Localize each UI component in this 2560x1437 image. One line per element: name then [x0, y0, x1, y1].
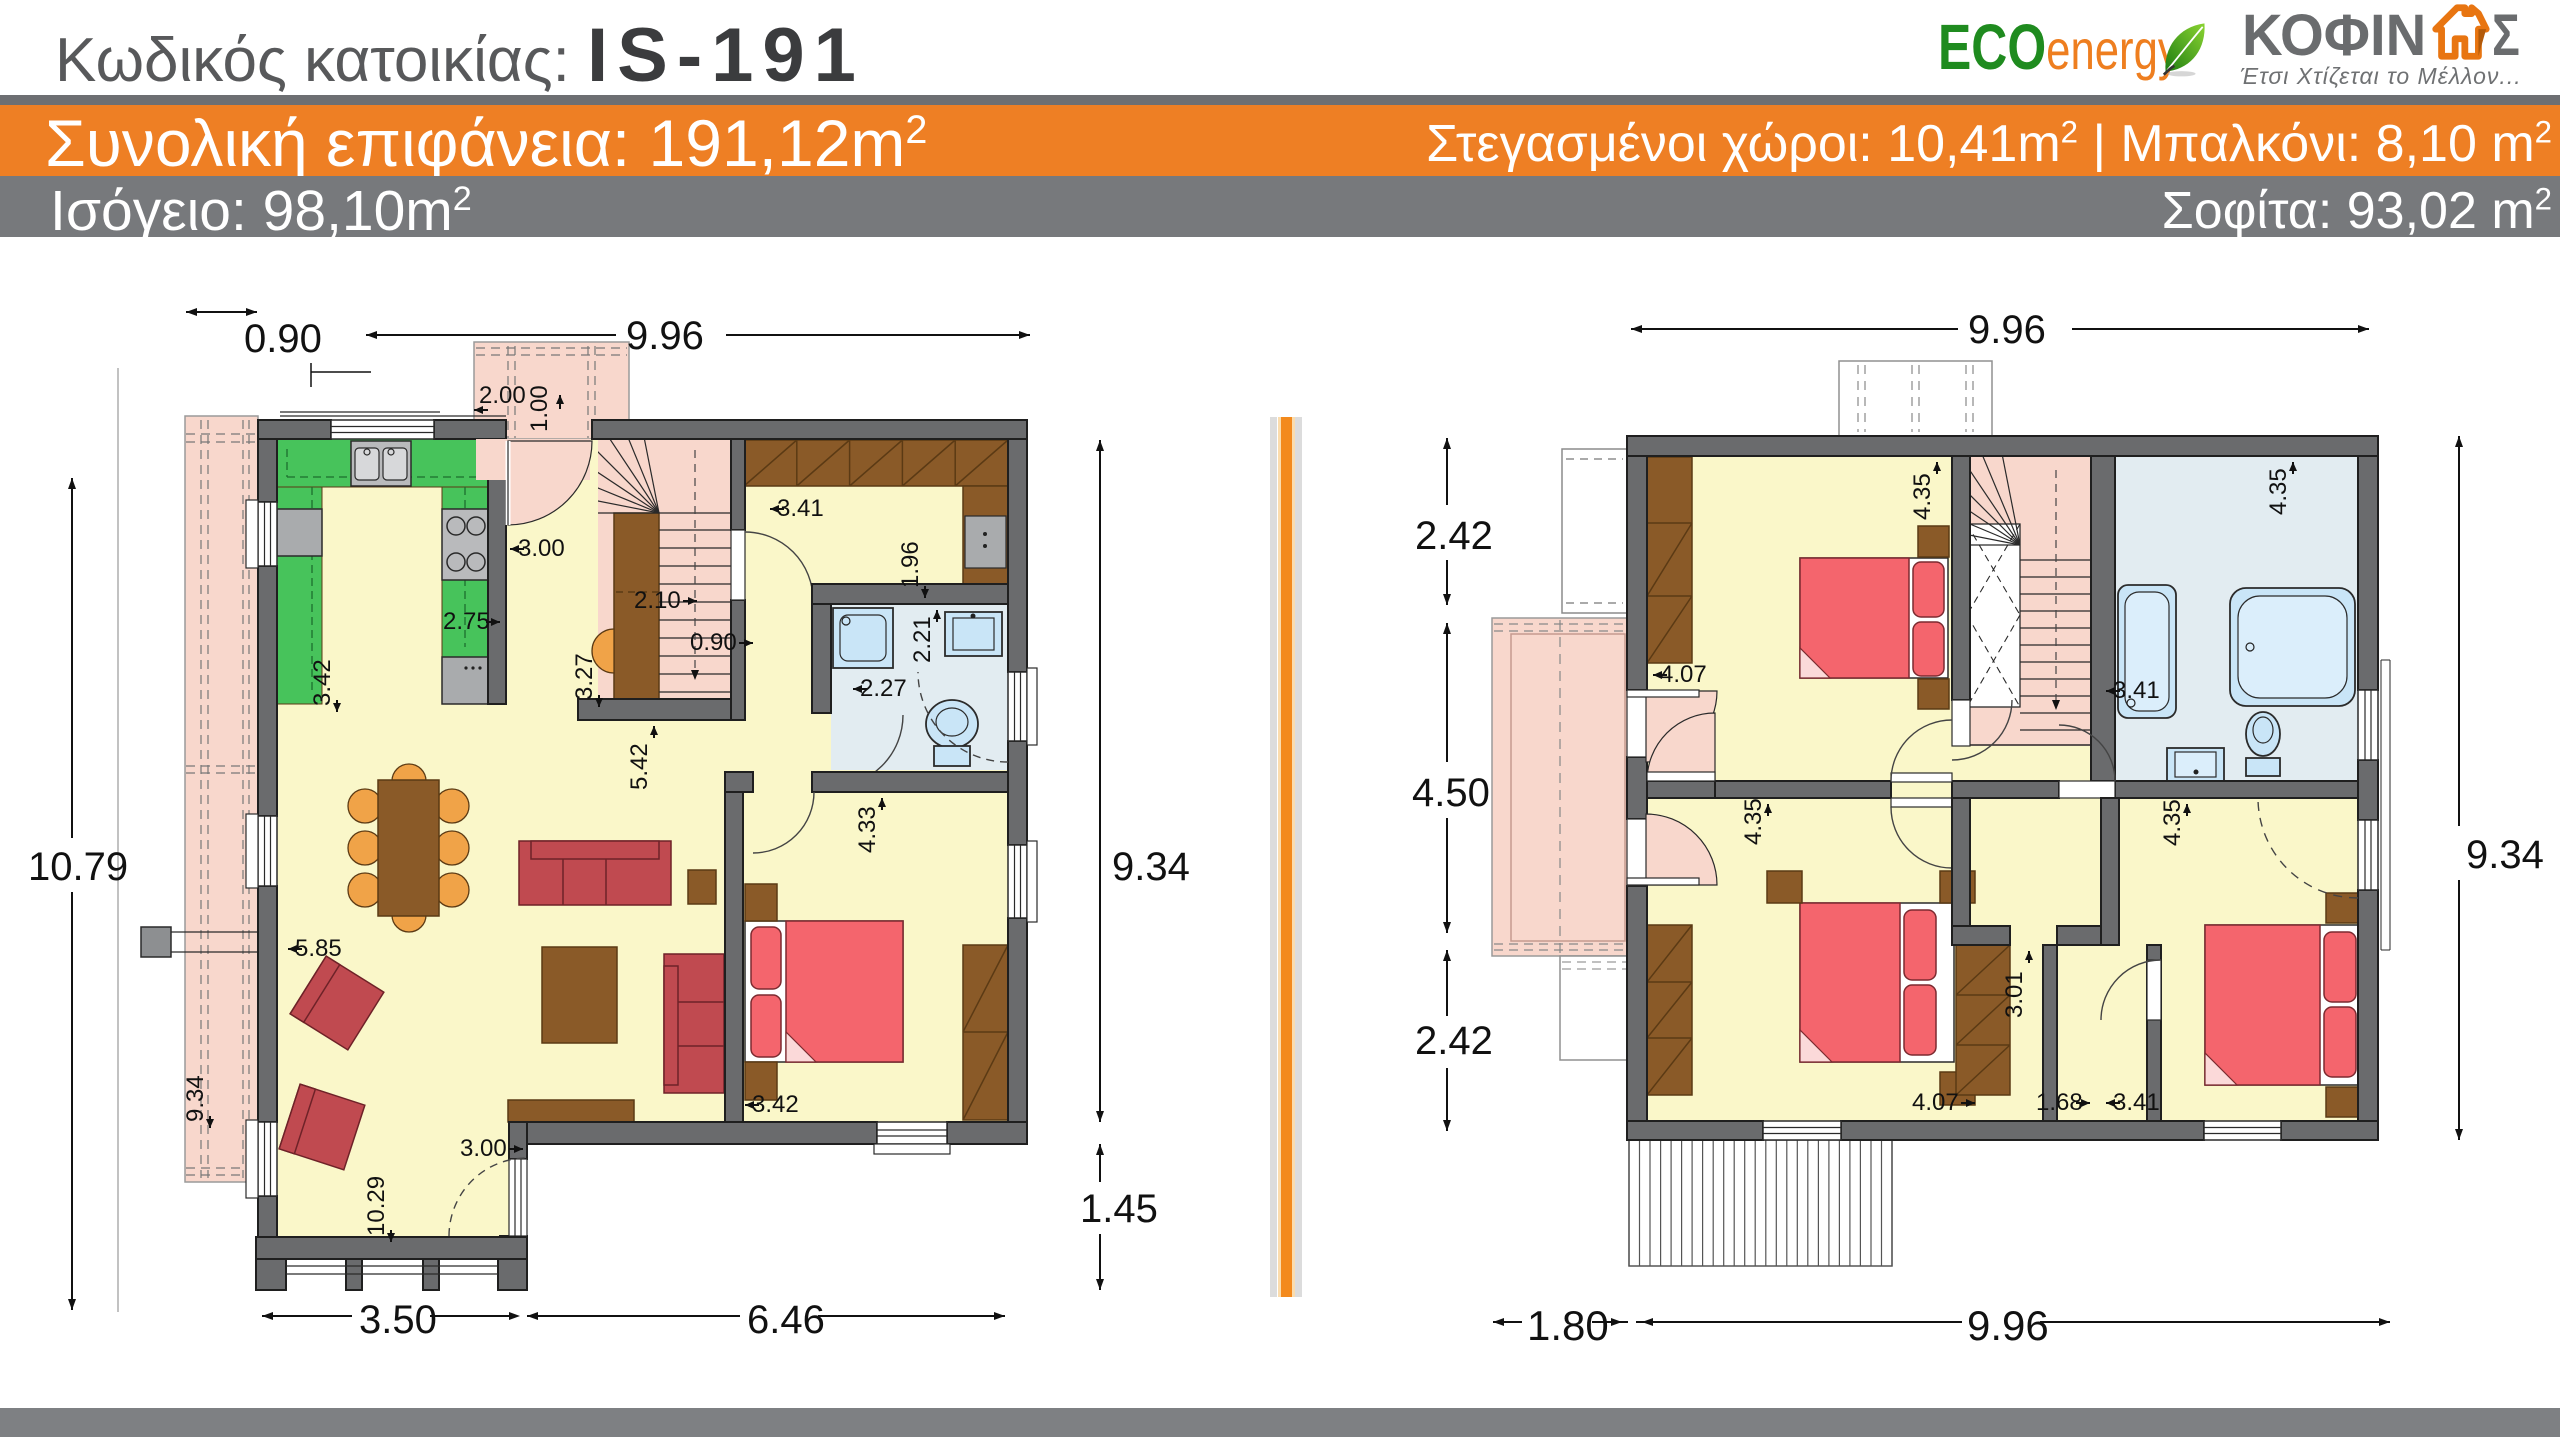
svg-text:3.27: 3.27 — [571, 653, 598, 700]
svg-text:3.42: 3.42 — [309, 659, 336, 706]
svg-text:9.34: 9.34 — [182, 1075, 209, 1122]
svg-text:3.41: 3.41 — [2113, 677, 2160, 704]
svg-text:3.01: 3.01 — [2001, 971, 2028, 1018]
svg-text:2.42: 2.42 — [1415, 514, 1493, 558]
svg-text:2.75: 2.75 — [443, 608, 490, 635]
svg-text:6.46: 6.46 — [747, 1298, 825, 1342]
svg-text:4.07: 4.07 — [1912, 1089, 1959, 1116]
svg-text:0.90: 0.90 — [690, 629, 737, 656]
svg-text:9.34: 9.34 — [2466, 833, 2544, 877]
svg-text:4.35: 4.35 — [2265, 468, 2292, 515]
svg-text:10.79: 10.79 — [28, 845, 128, 889]
svg-text:9.96: 9.96 — [1968, 308, 2046, 352]
svg-text:3.00: 3.00 — [518, 535, 565, 562]
svg-text:5.42: 5.42 — [626, 743, 653, 790]
svg-text:3.41: 3.41 — [777, 495, 824, 522]
svg-text:4.07: 4.07 — [1660, 661, 1707, 688]
svg-text:10.29: 10.29 — [363, 1176, 390, 1236]
svg-text:2.00: 2.00 — [479, 382, 526, 409]
svg-text:4.50: 4.50 — [1412, 771, 1490, 815]
svg-text:3.00: 3.00 — [460, 1135, 507, 1162]
svg-text:0.90: 0.90 — [244, 317, 322, 361]
svg-text:1.68: 1.68 — [2036, 1089, 2083, 1116]
svg-text:9.96: 9.96 — [626, 314, 704, 358]
svg-text:4.35: 4.35 — [1909, 473, 1936, 520]
svg-text:1.80: 1.80 — [1527, 1302, 1609, 1349]
svg-text:9.96: 9.96 — [1967, 1302, 2049, 1349]
svg-text:1.45: 1.45 — [1080, 1187, 1158, 1231]
svg-text:4.33: 4.33 — [854, 806, 881, 853]
svg-text:2.27: 2.27 — [860, 675, 907, 702]
svg-text:9.34: 9.34 — [1112, 845, 1190, 889]
svg-text:2.21: 2.21 — [909, 616, 936, 663]
svg-text:2.10: 2.10 — [634, 587, 681, 614]
svg-text:3.42: 3.42 — [752, 1091, 799, 1118]
svg-text:4.35: 4.35 — [1740, 798, 1767, 845]
svg-text:4.35: 4.35 — [2159, 799, 2186, 846]
svg-text:2.42: 2.42 — [1415, 1019, 1493, 1063]
svg-text:3.41: 3.41 — [2113, 1089, 2160, 1116]
svg-text:5.85: 5.85 — [295, 935, 342, 962]
svg-text:1.00: 1.00 — [526, 385, 553, 432]
svg-text:3.50: 3.50 — [359, 1298, 437, 1342]
svg-text:1.96: 1.96 — [897, 541, 924, 588]
